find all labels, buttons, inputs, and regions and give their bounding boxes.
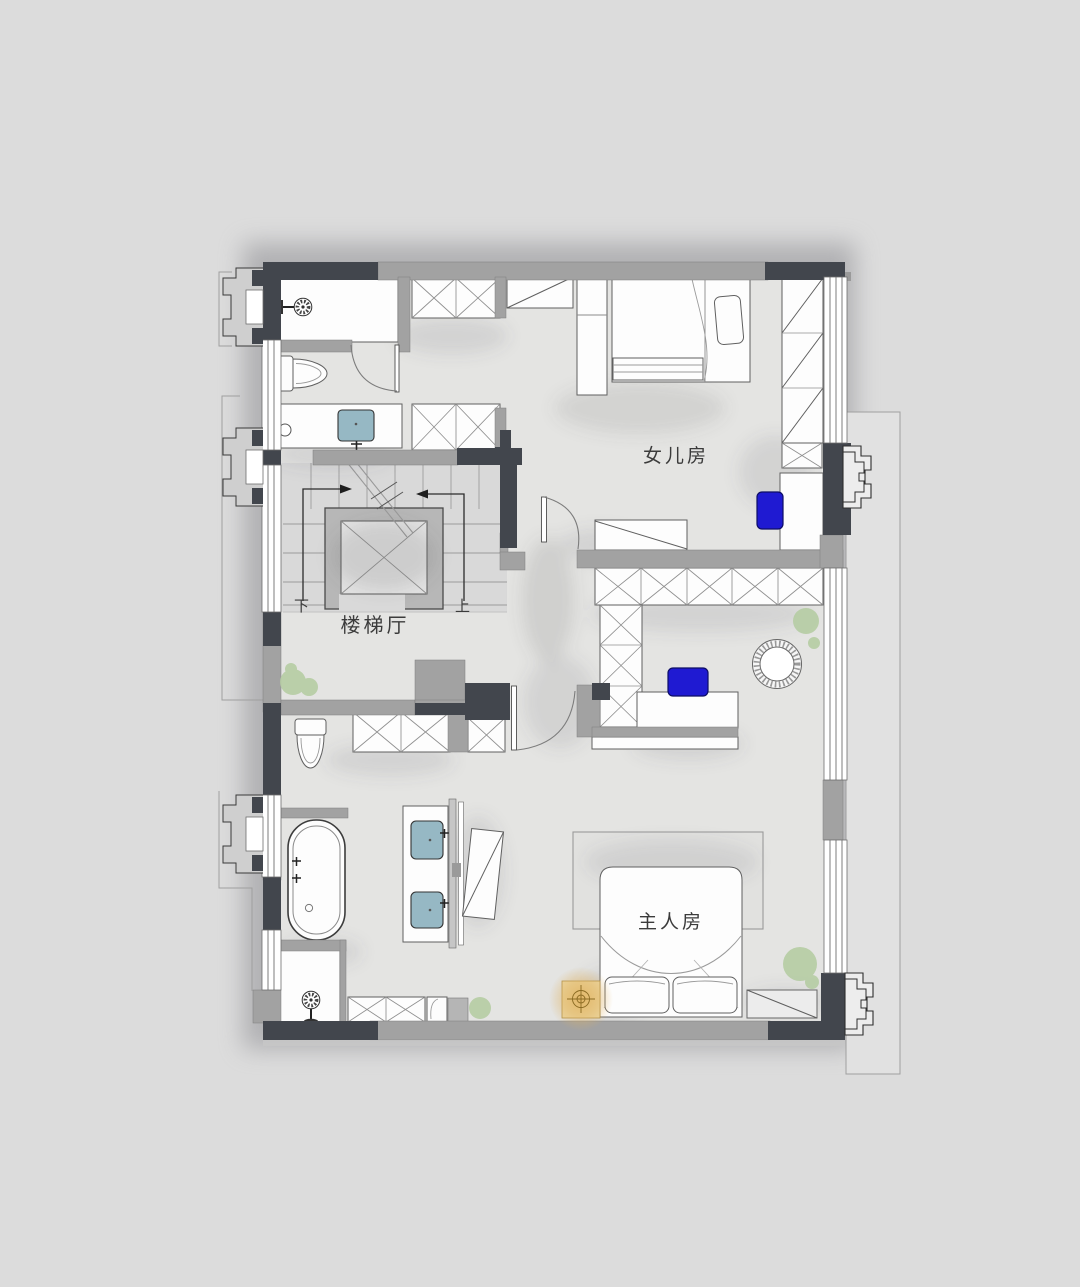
cabinet-diagonal (507, 277, 573, 308)
bench-cabinet (595, 520, 687, 550)
bed-daughter (612, 278, 750, 382)
label-daughter-room: 女儿房 (643, 445, 709, 467)
label-stair-hall: 楼梯厅 (341, 613, 410, 637)
chair-blue-daughter (757, 492, 783, 529)
bedside-cabinet (577, 278, 607, 395)
bookshelf-column (600, 605, 642, 727)
bed-bench (613, 358, 703, 380)
bookshelf-row (595, 568, 823, 605)
plant-icon (793, 608, 819, 634)
window-left-2 (262, 465, 281, 612)
label-stair-up: 上 (455, 597, 473, 615)
double-vanity (403, 799, 464, 948)
window-sill-board (592, 737, 738, 749)
chair-blue-study (668, 668, 708, 696)
floor-plan-canvas: 女儿房 主人房 楼梯厅 下 上 (0, 0, 1080, 1287)
chair-round (753, 640, 802, 689)
pillow (714, 295, 744, 345)
lamp-glow (549, 967, 613, 1031)
vanity-sink (277, 404, 402, 451)
desk-study (637, 692, 738, 728)
bathtub (288, 820, 345, 940)
window-right-3 (824, 840, 847, 973)
window-left-1 (262, 340, 281, 450)
label-master-room: 主人房 (638, 911, 704, 933)
cabinet-x-bottom (348, 997, 468, 1022)
window-left-4 (262, 930, 281, 990)
window-left-3 (262, 795, 281, 877)
cabinet-x-top (412, 278, 500, 318)
bed-master (600, 867, 742, 1017)
window-right-1 (824, 277, 847, 443)
pillow (605, 977, 669, 1013)
shower-master (278, 947, 340, 1023)
nightstand-right (747, 990, 817, 1018)
window-right-2 (824, 568, 847, 780)
pillow (673, 977, 737, 1013)
wardrobe-right (782, 278, 823, 468)
cabinet-x-mid (412, 404, 500, 450)
desk-daughter (780, 473, 823, 550)
plant-icon (469, 997, 491, 1019)
floor-plan: 女儿房 主人房 楼梯厅 下 上 (0, 0, 1080, 1287)
label-stair-down: 下 (294, 597, 312, 615)
